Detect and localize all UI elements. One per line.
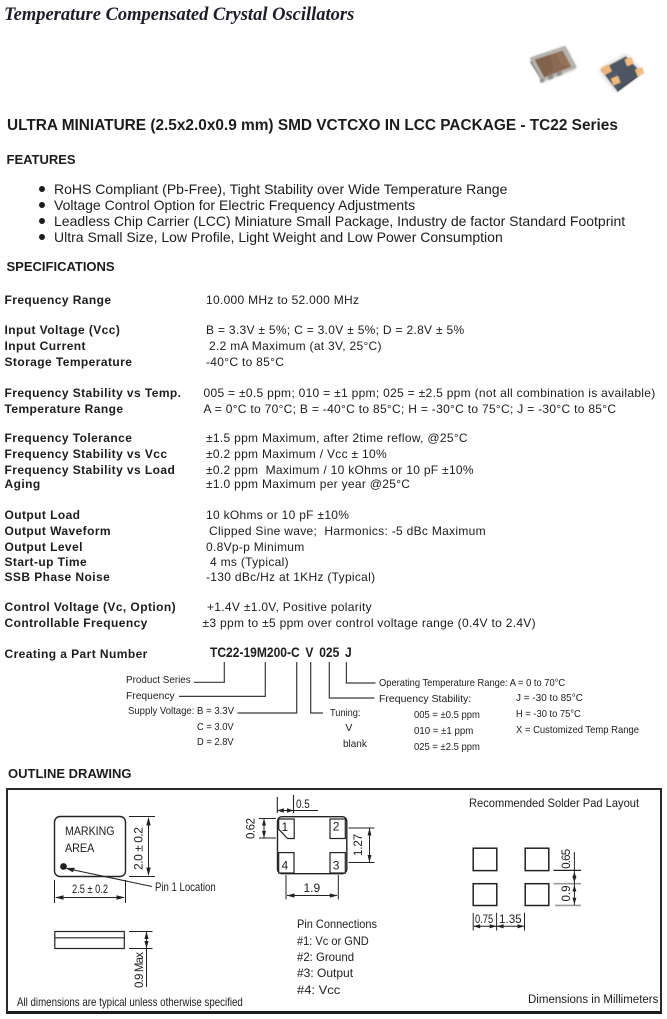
svg-text:1: 1 xyxy=(282,820,289,834)
svg-text:0.9: 0.9 xyxy=(561,886,573,902)
svg-text:2: 2 xyxy=(333,820,340,834)
svg-text:0.9 Max: 0.9 Max xyxy=(134,952,146,988)
svg-text:0.65: 0.65 xyxy=(561,849,573,869)
svg-text:0.62: 0.62 xyxy=(246,818,258,839)
svg-text:3: 3 xyxy=(333,858,340,872)
svg-text:1.27: 1.27 xyxy=(353,834,365,856)
svg-text:4: 4 xyxy=(282,858,289,872)
svg-text:2.0 ± 0.2: 2.0 ± 0.2 xyxy=(132,827,146,870)
